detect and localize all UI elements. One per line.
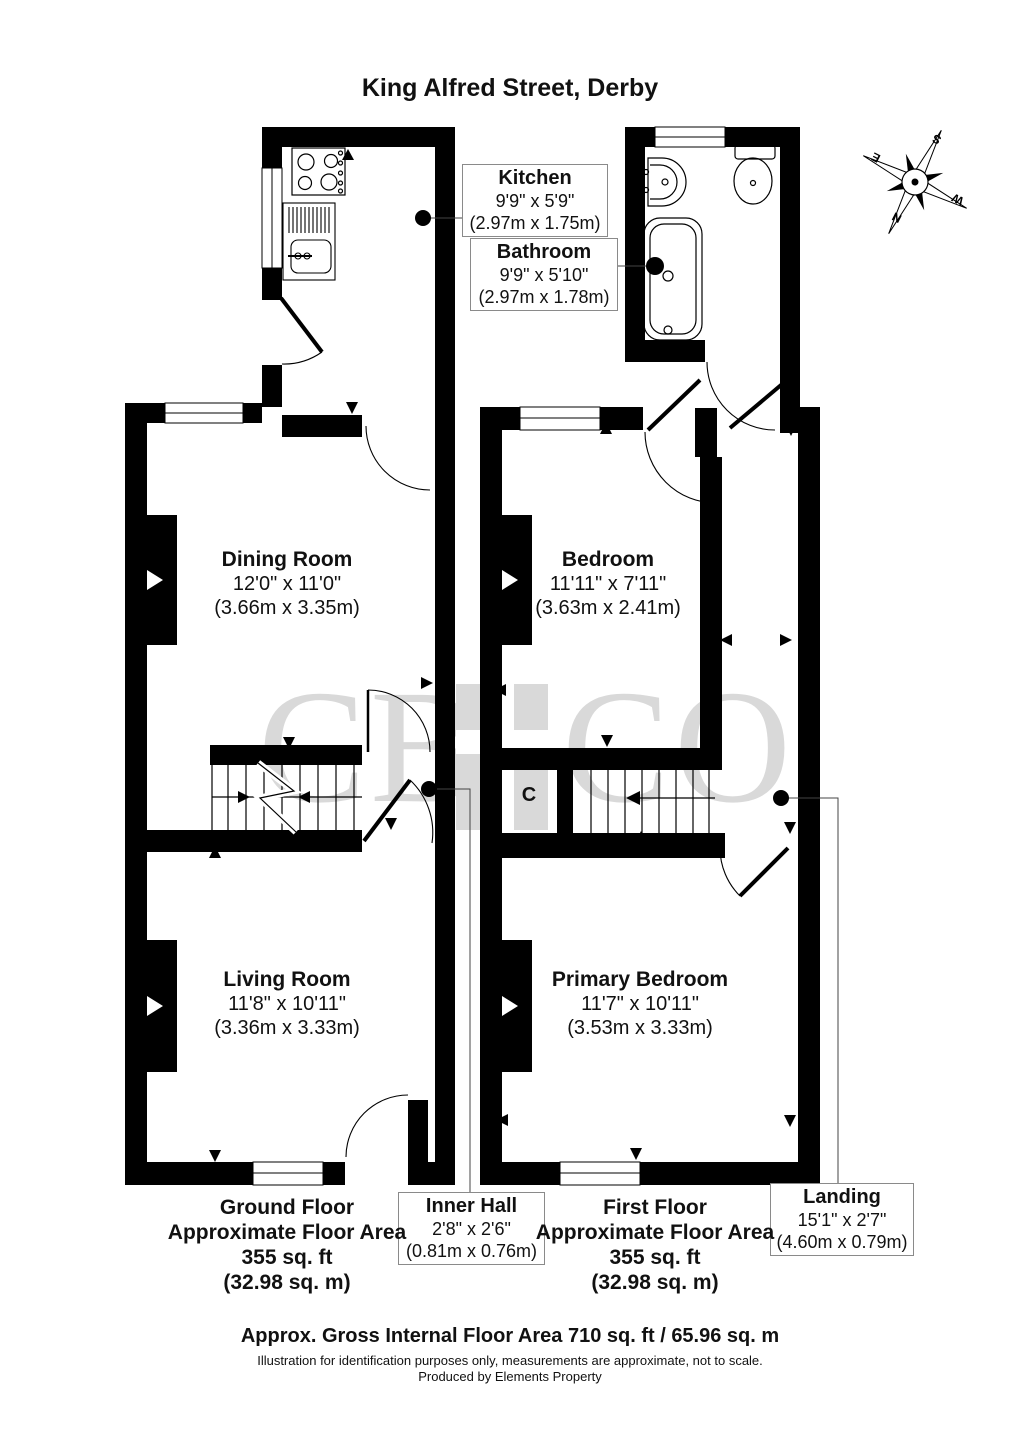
living-room-label: Living Room 11'8" x 10'11" (3.36m x 3.33… [167, 968, 407, 1040]
dining-room-label: Dining Room 12'0" x 11'0" (3.66m x 3.35m… [167, 548, 407, 620]
bathroom-imperial: 9'9" x 5'10" [473, 264, 615, 286]
bathroom-label-box: Bathroom 9'9" x 5'10" (2.97m x 1.78m) [470, 238, 618, 311]
primary-bedroom-label: Primary Bedroom 11'7" x 10'11" (3.53m x … [520, 968, 760, 1040]
ground-floor-sqm: (32.98 sq. m) [137, 1270, 437, 1295]
primary-imperial: 11'7" x 10'11" [520, 992, 760, 1016]
kitchen-sink-icon [283, 203, 335, 280]
first-floor-sqm: (32.98 sq. m) [505, 1270, 805, 1295]
first-floor-area-block: First Floor Approximate Floor Area 355 s… [505, 1195, 805, 1295]
primary-name: Primary Bedroom [520, 968, 760, 992]
first-floor-sqft: 355 sq. ft [505, 1245, 805, 1270]
bathroom-bath-icon [644, 218, 702, 340]
ground-floor-area-block: Ground Floor Approximate Floor Area 355 … [137, 1195, 437, 1295]
cupboard-label: C [516, 784, 542, 807]
ground-floor-title: Ground Floor [137, 1195, 437, 1220]
bathroom-name: Bathroom [473, 241, 615, 264]
first-stairs-arrow [626, 791, 640, 805]
kitchen-name: Kitchen [465, 167, 605, 190]
first-floor-subtitle: Approximate Floor Area [505, 1220, 805, 1245]
kitchen-hob-icon [292, 148, 345, 195]
compass-w-label: W [949, 190, 966, 208]
living-metric: (3.36m x 3.33m) [167, 1016, 407, 1040]
ground-floor-subtitle: Approximate Floor Area [137, 1220, 437, 1245]
first-floor-title: First Floor [505, 1195, 805, 1220]
bedroom-label: Bedroom 11'11" x 7'11" (3.63m x 2.41m) [488, 548, 728, 620]
bathroom-metric: (2.97m x 1.78m) [473, 286, 615, 308]
bedroom-name: Bedroom [488, 548, 728, 572]
kitchen-metric: (2.97m x 1.75m) [465, 212, 605, 234]
producer-text: Produced by Elements Property [0, 1369, 1020, 1385]
disclaimer-text: Illustration for identification purposes… [0, 1353, 1020, 1369]
primary-metric: (3.53m x 3.33m) [520, 1016, 760, 1040]
ground-floor-sqft: 355 sq. ft [137, 1245, 437, 1270]
bathroom-basin-icon [644, 158, 687, 206]
compass-icon: N S E W [837, 104, 993, 260]
floorplan-page: CB CO [0, 0, 1020, 1443]
bedroom-metric: (3.63m x 2.41m) [488, 596, 728, 620]
total-area-text: Approx. Gross Internal Floor Area 710 sq… [0, 1325, 1020, 1348]
bathroom-toilet-icon [734, 145, 775, 204]
living-name: Living Room [167, 968, 407, 992]
first-stairs [591, 770, 715, 833]
dining-name: Dining Room [167, 548, 407, 572]
compass-s-label: S [930, 131, 943, 147]
page-title: King Alfred Street, Derby [0, 74, 1020, 103]
ground-stairs [212, 763, 362, 832]
kitchen-label-box: Kitchen 9'9" x 5'9" (2.97m x 1.75m) [462, 164, 608, 237]
kitchen-imperial: 9'9" x 5'9" [465, 190, 605, 212]
dining-imperial: 12'0" x 11'0" [167, 572, 407, 596]
bedroom-imperial: 11'11" x 7'11" [488, 572, 728, 596]
living-imperial: 11'8" x 10'11" [167, 992, 407, 1016]
dining-metric: (3.66m x 3.35m) [167, 596, 407, 620]
